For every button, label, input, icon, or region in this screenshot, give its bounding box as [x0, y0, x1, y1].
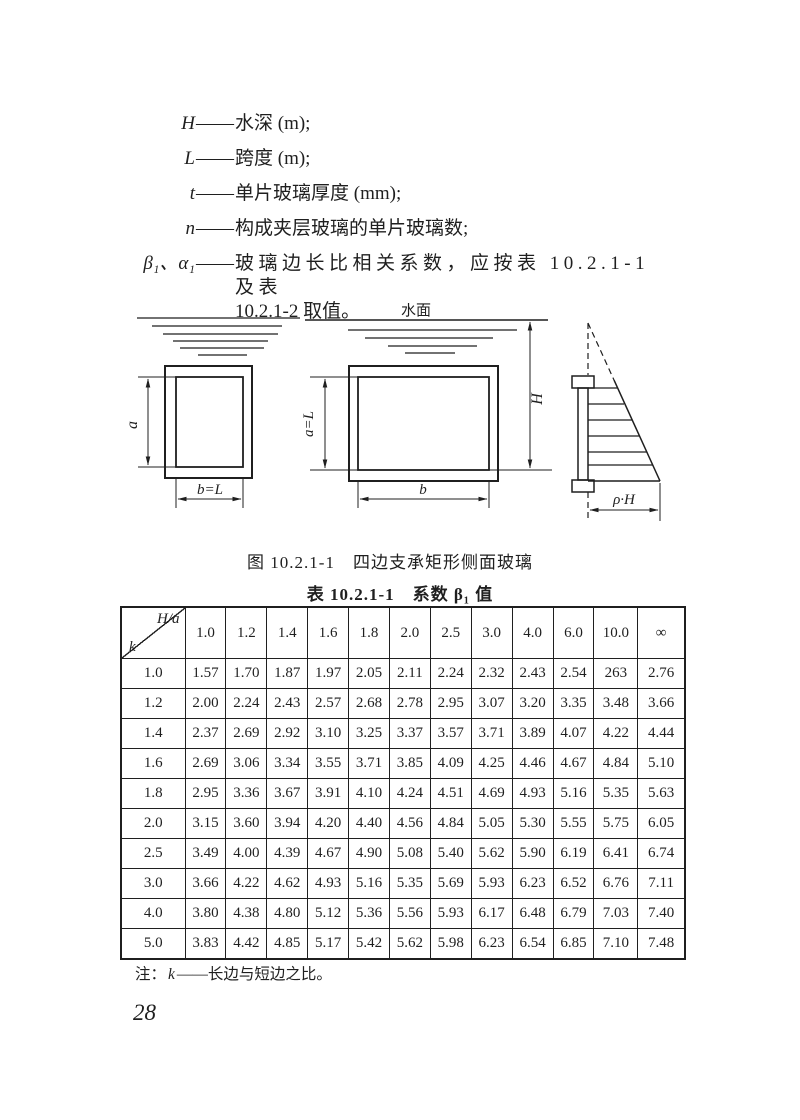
table-cell: 2.95: [430, 689, 471, 719]
table-cell: 4.90: [349, 839, 390, 869]
table-cell: 4.10: [349, 779, 390, 809]
table-cell: 4.85: [267, 929, 308, 960]
document-page: H——水深 (m);L——跨度 (m);t——单片玻璃厚度 (mm);n——构成…: [0, 0, 800, 1120]
glass-frame-outer: [349, 366, 498, 481]
table-row: 3.03.664.224.624.935.165.355.695.936.236…: [121, 869, 685, 899]
front-view-square-panel: a b=L: [124, 318, 300, 508]
table-cell: 5.75: [594, 809, 638, 839]
row-header-k: 1.6: [121, 749, 185, 779]
column-header: 1.2: [226, 607, 267, 659]
table-cell: 5.05: [471, 809, 512, 839]
pressure-hypotenuse: [614, 380, 660, 481]
table-cell: 6.52: [553, 869, 594, 899]
table-cell: 4.07: [553, 719, 594, 749]
glass-panel-side: [578, 388, 588, 480]
table-cell: 5.62: [471, 839, 512, 869]
table-cell: 3.55: [308, 749, 349, 779]
table-row: 2.53.494.004.394.674.905.085.405.625.906…: [121, 839, 685, 869]
table-cell: 3.71: [349, 749, 390, 779]
table-cell: 3.80: [185, 899, 226, 929]
table-cell: 4.39: [267, 839, 308, 869]
table-cell: 3.94: [267, 809, 308, 839]
table-row: 4.03.804.384.805.125.365.565.936.176.486…: [121, 899, 685, 929]
table-cell: 263: [594, 659, 638, 689]
definition-row: L——跨度 (m);: [105, 147, 670, 171]
table-cell: 3.71: [471, 719, 512, 749]
side-view-pressure-diagram: ρ·H: [572, 323, 660, 521]
dimension-b-label: b: [419, 482, 427, 498]
table-cell: 4.00: [226, 839, 267, 869]
table-cell: 5.63: [638, 779, 685, 809]
table-cell: 6.23: [512, 869, 553, 899]
table-cell: 3.83: [185, 929, 226, 960]
column-header: 3.0: [471, 607, 512, 659]
table-cell: 4.93: [512, 779, 553, 809]
column-header: 1.4: [267, 607, 308, 659]
table-cell: 7.03: [594, 899, 638, 929]
definition-line: 构成夹层玻璃的单片玻璃数;: [235, 217, 670, 241]
table-title: 表 10.2.1-1 系数 β₁ 值: [0, 580, 800, 605]
table-cell: 4.25: [471, 749, 512, 779]
figure-caption: 图 10.2.1-1 四边支承矩形侧面玻璃: [0, 548, 780, 573]
table-cell: 2.54: [553, 659, 594, 689]
dimension-bL-label: b=L: [197, 482, 223, 498]
table-cell: 2.92: [267, 719, 308, 749]
table-cell: 4.09: [430, 749, 471, 779]
water-surface-hatch-mid: [348, 330, 517, 353]
table-cell: 6.19: [553, 839, 594, 869]
table-cell: 2.37: [185, 719, 226, 749]
dimension-aL-label: a=L: [301, 411, 317, 437]
table-cell: 3.66: [185, 869, 226, 899]
definition-text: 跨度 (m);: [235, 147, 670, 171]
table-cell: 4.38: [226, 899, 267, 929]
pressure-apex-dashed-lines: [588, 323, 614, 519]
definition-dash: ——: [195, 112, 235, 136]
table-row: 1.82.953.363.673.914.104.244.514.694.935…: [121, 779, 685, 809]
table-cell: 3.06: [226, 749, 267, 779]
table-cell: 2.95: [185, 779, 226, 809]
table-cell: 3.89: [512, 719, 553, 749]
table-header-row: H/a k 1.01.21.41.61.82.02.53.04.06.010.0…: [121, 607, 685, 659]
table-cell: 5.08: [389, 839, 430, 869]
table-cell: 3.66: [638, 689, 685, 719]
table-cell: 3.60: [226, 809, 267, 839]
definition-dash: ——: [195, 217, 235, 241]
table-cell: 1.87: [267, 659, 308, 689]
table-cell: 7.48: [638, 929, 685, 960]
table-cell: 5.35: [389, 869, 430, 899]
definition-row: t——单片玻璃厚度 (mm);: [105, 182, 670, 206]
column-header: 2.5: [430, 607, 471, 659]
table-cell: 3.15: [185, 809, 226, 839]
table-cell: 6.74: [638, 839, 685, 869]
table-cell: 3.07: [471, 689, 512, 719]
table-cell: 5.62: [389, 929, 430, 960]
dimension-rhoH-label: ρ·H: [612, 492, 636, 508]
table-cell: 4.84: [430, 809, 471, 839]
table-row: 1.22.002.242.432.572.682.782.953.073.203…: [121, 689, 685, 719]
table-cell: 1.57: [185, 659, 226, 689]
table-cell: 4.84: [594, 749, 638, 779]
beta1-coefficient-table: H/a k 1.01.21.41.61.82.02.53.04.06.010.0…: [120, 606, 686, 960]
table-cell: 4.67: [553, 749, 594, 779]
table-cell: 6.05: [638, 809, 685, 839]
definition-text: 单片玻璃厚度 (mm);: [235, 182, 670, 206]
dimension-extension-lines: [310, 377, 552, 508]
table-cell: 4.20: [308, 809, 349, 839]
table-cell: 6.76: [594, 869, 638, 899]
table-cell: 4.67: [308, 839, 349, 869]
table-cell: 6.48: [512, 899, 553, 929]
column-header: 1.8: [349, 607, 390, 659]
row-header-k: 4.0: [121, 899, 185, 929]
table-cell: 4.93: [308, 869, 349, 899]
table-cell: 4.22: [594, 719, 638, 749]
table-row: 1.42.372.692.923.103.253.373.573.713.894…: [121, 719, 685, 749]
definitions: H——水深 (m);L——跨度 (m);t——单片玻璃厚度 (mm);n——构成…: [105, 112, 670, 335]
row-header-k: 1.8: [121, 779, 185, 809]
table-cell: 6.54: [512, 929, 553, 960]
definition-line: 单片玻璃厚度 (mm);: [235, 182, 670, 206]
front-view-wide-panel: 水面 a=L b H: [301, 303, 552, 508]
dimension-extension-lines: [138, 377, 243, 508]
table-cell: 4.80: [267, 899, 308, 929]
table-cell: 5.98: [430, 929, 471, 960]
column-header: 1.6: [308, 607, 349, 659]
table-row: 1.62.693.063.343.553.713.854.094.254.464…: [121, 749, 685, 779]
table-cell: 5.35: [594, 779, 638, 809]
water-surface-hatch-left: [137, 318, 300, 355]
table-cell: 4.46: [512, 749, 553, 779]
table-cell: 5.16: [349, 869, 390, 899]
definition-symbol: n: [105, 217, 195, 241]
table-cell: 4.24: [389, 779, 430, 809]
table-cell: 5.90: [512, 839, 553, 869]
table-corner-diagonal: H/a k: [121, 607, 185, 659]
table-cell: 7.10: [594, 929, 638, 960]
dimension-a-label: a: [124, 421, 141, 429]
column-header: 1.0: [185, 607, 226, 659]
column-header: 2.0: [389, 607, 430, 659]
table-cell: 5.12: [308, 899, 349, 929]
table-cell: 5.56: [389, 899, 430, 929]
column-header: ∞: [638, 607, 685, 659]
table-cell: 3.37: [389, 719, 430, 749]
table-cell: 4.22: [226, 869, 267, 899]
row-header-k: 2.0: [121, 809, 185, 839]
column-header: 4.0: [512, 607, 553, 659]
table-cell: 2.76: [638, 659, 685, 689]
table-cell: 2.78: [389, 689, 430, 719]
row-header-k: 1.4: [121, 719, 185, 749]
table-cell: 6.41: [594, 839, 638, 869]
table-cell: 2.00: [185, 689, 226, 719]
table-cell: 5.17: [308, 929, 349, 960]
table-cell: 3.34: [267, 749, 308, 779]
table-cell: 4.51: [430, 779, 471, 809]
note-text: ——长边与短边之比。: [177, 966, 332, 983]
table-cell: 4.42: [226, 929, 267, 960]
definition-row: n——构成夹层玻璃的单片玻璃数;: [105, 217, 670, 241]
table-cell: 5.93: [471, 869, 512, 899]
table-cell: 2.43: [512, 659, 553, 689]
table-cell: 5.36: [349, 899, 390, 929]
definition-row: H——水深 (m);: [105, 112, 670, 136]
table-cell: 2.32: [471, 659, 512, 689]
table-cell: 4.44: [638, 719, 685, 749]
table-cell: 6.17: [471, 899, 512, 929]
note-symbol-k: k: [166, 966, 177, 983]
row-header-k: 1.0: [121, 659, 185, 689]
row-header-k: 1.2: [121, 689, 185, 719]
definition-dash: ——: [195, 147, 235, 171]
table-cell: 2.24: [226, 689, 267, 719]
table-cell: 4.62: [267, 869, 308, 899]
table-cell: 3.36: [226, 779, 267, 809]
table-cell: 3.49: [185, 839, 226, 869]
pressure-hatch-lines: [588, 388, 653, 465]
table-cell: 6.85: [553, 929, 594, 960]
table-cell: 2.69: [185, 749, 226, 779]
table-cell: 3.57: [430, 719, 471, 749]
definition-line: 水深 (m);: [235, 112, 670, 136]
table-cell: 3.35: [553, 689, 594, 719]
table-note: 注：k——长边与短边之比。: [135, 962, 332, 984]
table-cell: 2.69: [226, 719, 267, 749]
definition-symbol: t: [105, 182, 195, 206]
page-number: 28: [133, 1000, 156, 1026]
table-cell: 5.40: [430, 839, 471, 869]
table-cell: 2.57: [308, 689, 349, 719]
table-cell: 6.79: [553, 899, 594, 929]
support-bracket-bottom: [572, 480, 594, 492]
table-cell: 3.20: [512, 689, 553, 719]
table-cell: 5.93: [430, 899, 471, 929]
table-cell: 2.43: [267, 689, 308, 719]
definition-line: 跨度 (m);: [235, 147, 670, 171]
table-cell: 5.16: [553, 779, 594, 809]
table-cell: 2.11: [389, 659, 430, 689]
definition-text: 水深 (m);: [235, 112, 670, 136]
definition-line: 玻璃边长比相关系数，应按表 10.2.1-1 及表: [235, 252, 670, 300]
column-header: 6.0: [553, 607, 594, 659]
definition-symbol: L: [105, 147, 195, 171]
table-cell: 5.69: [430, 869, 471, 899]
row-header-k: 2.5: [121, 839, 185, 869]
definition-symbol: H: [105, 112, 195, 136]
table-cell: 4.40: [349, 809, 390, 839]
dimension-H-label: H: [529, 392, 546, 406]
table-cell: 4.56: [389, 809, 430, 839]
table-cell: 2.68: [349, 689, 390, 719]
definition-dash: ——: [195, 182, 235, 206]
row-header-k: 5.0: [121, 929, 185, 960]
note-prefix: 注：: [135, 966, 166, 983]
table-row: 5.03.834.424.855.175.425.625.986.236.546…: [121, 929, 685, 960]
table-cell: 3.67: [267, 779, 308, 809]
corner-label-top: H/a: [157, 611, 180, 628]
table-cell: 2.24: [430, 659, 471, 689]
table-cell: 5.55: [553, 809, 594, 839]
table-cell: 5.42: [349, 929, 390, 960]
table-cell: 7.11: [638, 869, 685, 899]
table-cell: 5.10: [638, 749, 685, 779]
table-cell: 5.30: [512, 809, 553, 839]
table-cell: 3.10: [308, 719, 349, 749]
row-header-k: 3.0: [121, 869, 185, 899]
corner-label-bottom: k: [129, 639, 136, 656]
table-cell: 2.05: [349, 659, 390, 689]
table-row: 1.01.571.701.871.972.052.112.242.322.432…: [121, 659, 685, 689]
table-cell: 6.23: [471, 929, 512, 960]
table-cell: 7.40: [638, 899, 685, 929]
glass-pane-inner: [176, 377, 243, 467]
table-cell: 3.25: [349, 719, 390, 749]
glass-pane-inner: [358, 377, 489, 470]
column-header: 10.0: [594, 607, 638, 659]
table-cell: 1.97: [308, 659, 349, 689]
beta-table-body: H/a k 1.01.21.41.61.82.02.53.04.06.010.0…: [121, 607, 685, 959]
support-bracket-top: [572, 376, 594, 388]
definition-text: 构成夹层玻璃的单片玻璃数;: [235, 217, 670, 241]
table-cell: 3.48: [594, 689, 638, 719]
table-cell: 4.69: [471, 779, 512, 809]
glass-frame-outer: [165, 366, 252, 478]
table-cell: 1.70: [226, 659, 267, 689]
figure-diagram: a b=L 水面 a=L b H: [100, 303, 700, 543]
table-cell: 3.85: [389, 749, 430, 779]
water-surface-label: 水面: [401, 303, 431, 319]
table-row: 2.03.153.603.944.204.404.564.845.055.305…: [121, 809, 685, 839]
table-cell: 3.91: [308, 779, 349, 809]
